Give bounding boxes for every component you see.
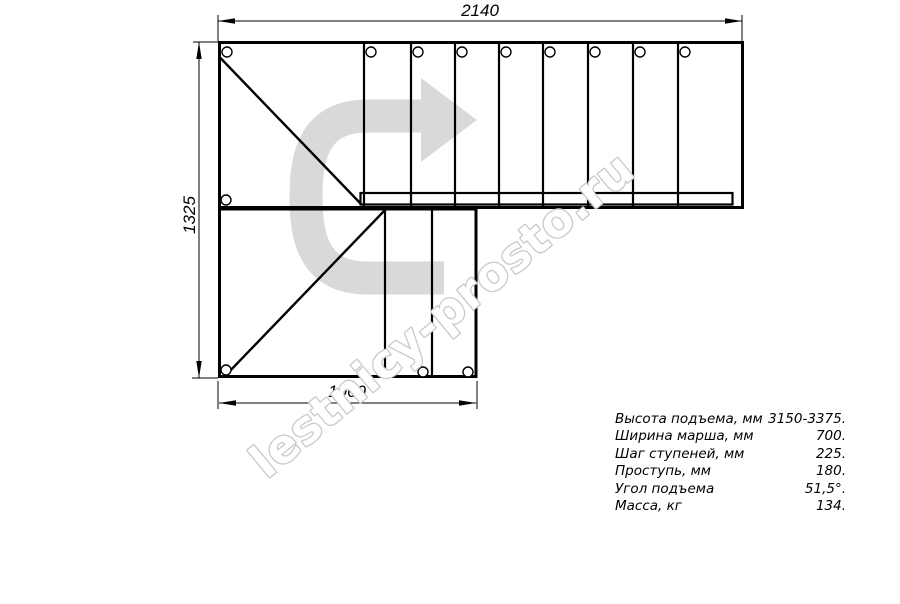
spec-row: Шаг ступеней, мм 225.: [615, 446, 846, 463]
spec-label: Шаг ступеней, мм: [615, 446, 744, 463]
spec-row: Ширина марша, мм 700.: [615, 428, 846, 445]
direction-arrow-icon: [306, 78, 477, 278]
spec-value: 51,5°.: [805, 481, 846, 498]
dimension-arrowheads: [196, 18, 742, 405]
spec-row: Высота подъема, мм 3150-3375.: [615, 411, 846, 428]
dimension-lines: [192, 15, 742, 409]
spec-table: Высота подъема, мм 3150-3375. Ширина мар…: [615, 411, 846, 515]
spec-value: 3150-3375.: [768, 411, 846, 428]
spec-label: Проступь, мм: [615, 463, 711, 480]
dimension-top-label: 2140: [460, 1, 499, 20]
spec-value: 180.: [816, 463, 846, 480]
dimension-left-label: 1325: [180, 196, 199, 234]
spec-row: Масса, кг 134.: [615, 498, 846, 515]
spec-label: Масса, кг: [615, 498, 682, 515]
spec-value: 700.: [816, 428, 846, 445]
spec-row: Проступь, мм 180.: [615, 463, 846, 480]
spec-label: Ширина марша, мм: [615, 428, 754, 445]
spec-row: Угол подъема 51,5°.: [615, 481, 846, 498]
spec-label: Угол подъема: [615, 481, 714, 498]
spec-value: 225.: [816, 446, 846, 463]
spec-value: 134.: [816, 498, 846, 515]
spec-label: Высота подъема, мм: [615, 411, 763, 428]
